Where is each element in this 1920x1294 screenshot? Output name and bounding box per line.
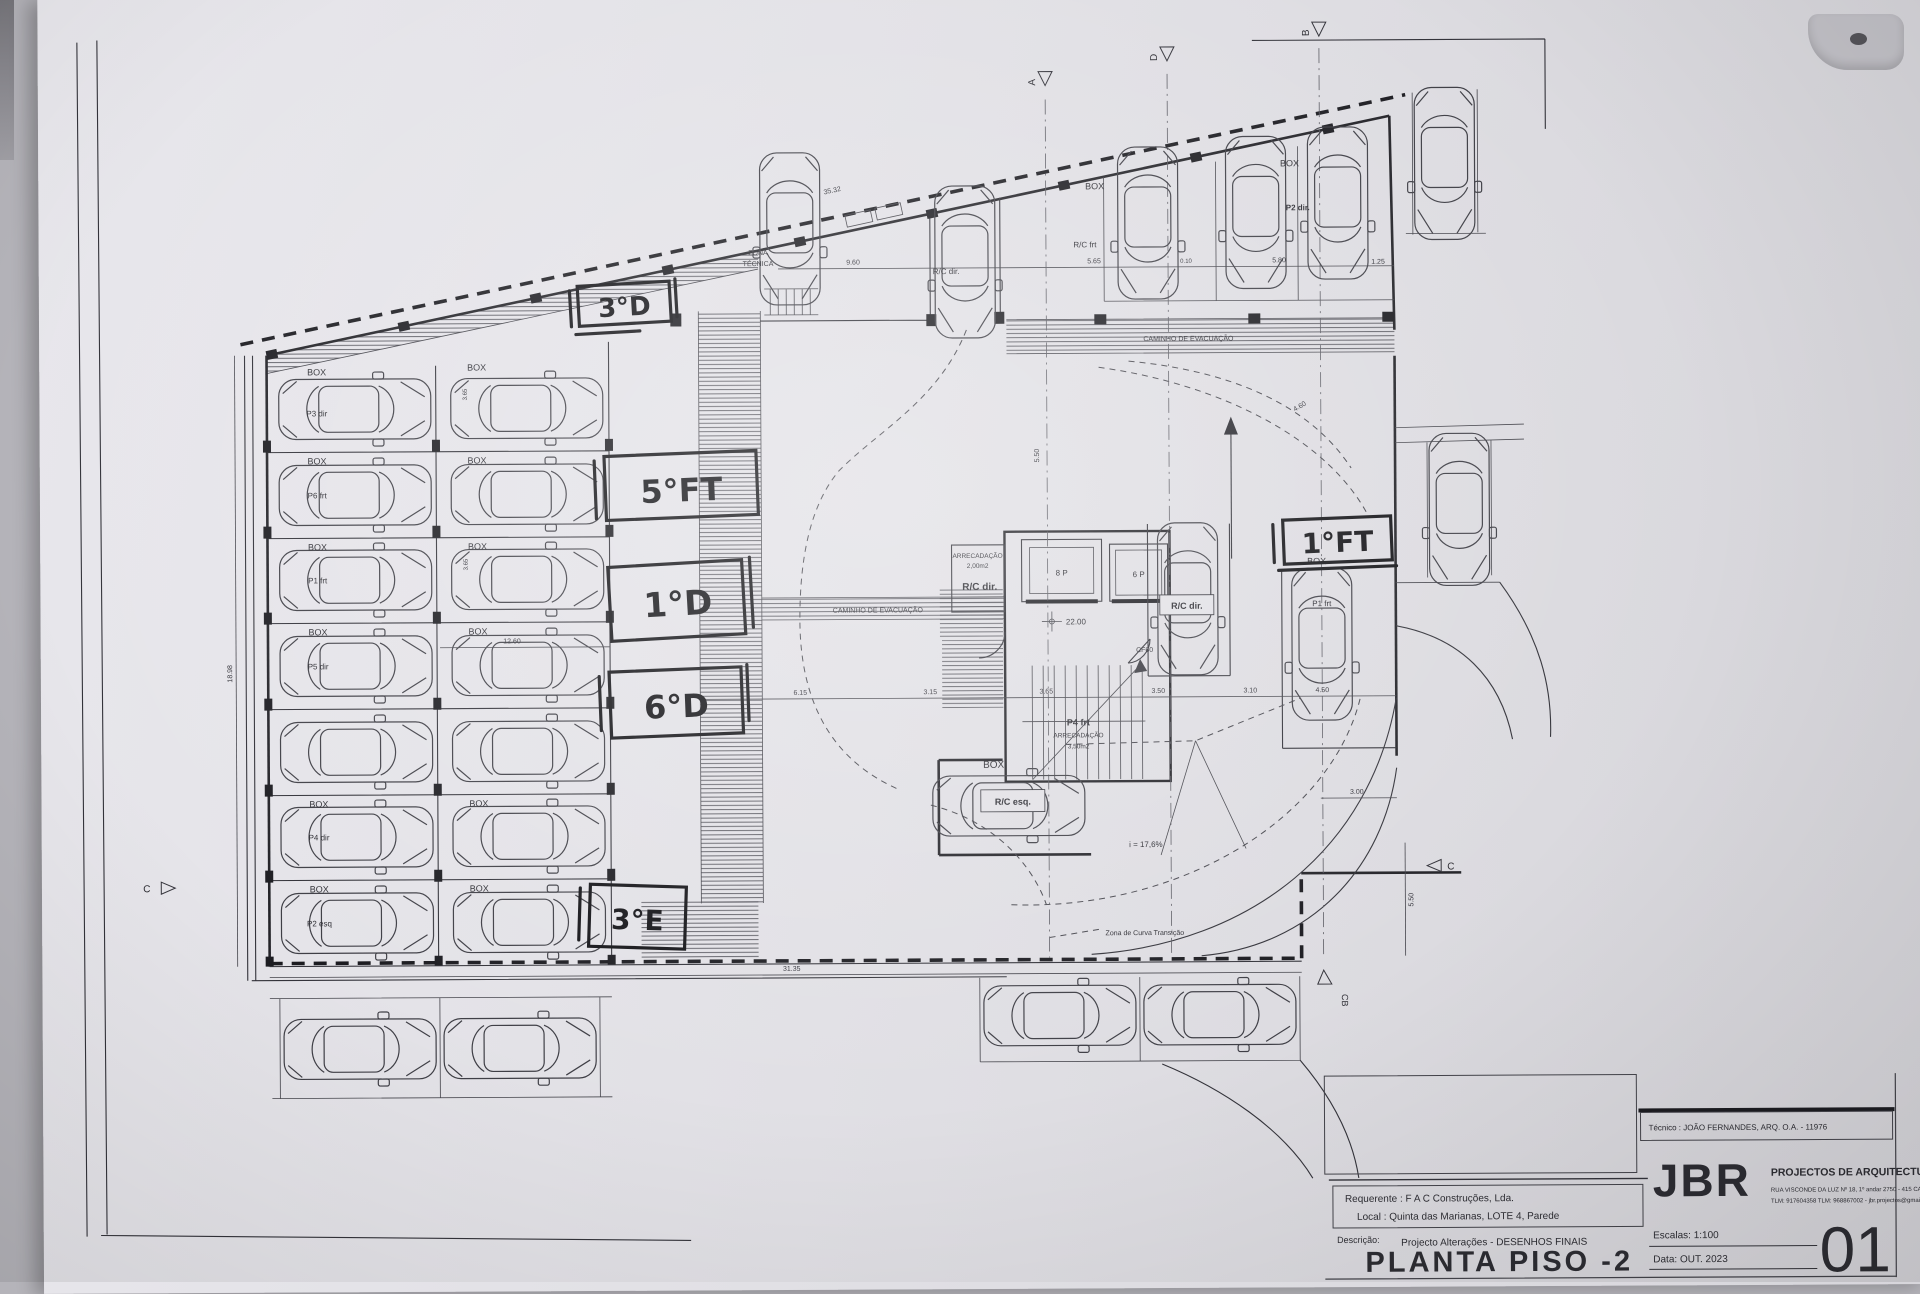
drive-path-curves [798, 328, 1397, 958]
technician-line: Técnico : JOÃO FERNANDES, ARQ. O.A. - 11… [1649, 1122, 1828, 1132]
binder-dot [1850, 33, 1867, 45]
firm-logo: JBR [1653, 1154, 1751, 1207]
car-icon [984, 978, 1136, 1053]
car-icon [1144, 977, 1296, 1052]
unit-label: R/C dir. [962, 582, 997, 593]
dim-text: 4.60 [1292, 400, 1307, 413]
evacuation-path-label: CAMINHO DE EVACUAÇÃO [833, 605, 924, 614]
dim-text: 5.65 [1087, 258, 1101, 265]
box-label: BOX [308, 542, 327, 552]
car-icon [279, 372, 431, 447]
box-label: BOX [310, 884, 329, 894]
car-icon [281, 886, 433, 961]
box-label: BOX [983, 760, 1005, 771]
unit-label: R/C dir. [1171, 601, 1203, 611]
car-icon [453, 885, 605, 960]
level-marker: 22.00 [1066, 617, 1087, 626]
date-line: Data: OUT. 2023 [1653, 1254, 1728, 1265]
stall-code: P2 esq [307, 919, 332, 928]
car-icon [281, 800, 433, 875]
firm-name: PROJECTOS DE ARQUITECTURA [1771, 1166, 1920, 1179]
storage-area: 3,50m2 [1068, 743, 1090, 750]
stall-code: P4 dir [309, 833, 330, 842]
dim-text: 3.65 [463, 388, 469, 400]
evacuation-path-label: CAMINHO DE EVACUAÇÃO [1143, 334, 1234, 343]
scale-line: Escalas: 1:100 [1653, 1230, 1719, 1241]
car-icon [1422, 433, 1497, 585]
box-label: BOX [1085, 181, 1104, 191]
car-icon [451, 542, 603, 617]
box-label: BOX [309, 799, 328, 809]
sheet-frame [77, 33, 1551, 1244]
dim-text: 3.15 [923, 689, 937, 696]
car-icon [451, 371, 603, 446]
car-icon [280, 715, 432, 790]
elevator-label: 6 P [1133, 570, 1145, 579]
car-icon [451, 457, 603, 532]
car-icon [1110, 147, 1185, 299]
dim-text: 3.00 [1350, 789, 1364, 796]
parked-cars [277, 87, 1499, 1086]
photographed-floor-plan: { "photo": { "backdrop": "#b5b4ba", "pap… [0, 0, 1920, 1282]
firm-contacts: TLM: 917604358 TLM: 968867002 - jbr.proj… [1771, 1198, 1920, 1205]
car-icon [452, 628, 604, 703]
dim-text: 3.65 [1039, 689, 1053, 696]
stall-code: P4 frt [1067, 717, 1090, 727]
dim-text: 0.10 [1180, 259, 1192, 265]
dim-text: 3.10 [1243, 687, 1257, 694]
handwritten-unit: 1°D [642, 583, 713, 627]
stall-code: P1 frt [1312, 599, 1332, 608]
site-line: Local : Quinta das Marianas, LOTE 4, Par… [1357, 1211, 1560, 1223]
dim-text: 9.60 [846, 260, 860, 267]
handwritten-unit: 3°E [611, 903, 665, 938]
title-block: Técnico : JOÃO FERNANDES, ARQ. O.A. - 11… [1324, 1073, 1920, 1282]
car-icon [928, 186, 1003, 338]
dim-text: 3.50 [1151, 688, 1165, 695]
stall-code: P5 dir [308, 662, 329, 671]
handwritten-unit: 6°D [643, 686, 709, 727]
box-label: BOX [470, 883, 489, 893]
stall-code: P3 dir [306, 409, 327, 418]
dim-text: 4.50 [1315, 687, 1329, 694]
dim-text: 1.25 [1371, 259, 1385, 266]
dim-text: 35.32 [823, 186, 842, 196]
box-label: BOX [308, 627, 327, 637]
storage-label: ARRECADAÇÃO [1053, 730, 1103, 739]
car-icon [280, 629, 432, 704]
stall-code: R/C frt [1073, 240, 1097, 249]
ramp-slope-label: i = 17,6% [1129, 840, 1163, 849]
section-marker-cb: CB [1340, 994, 1350, 1007]
zona-tecnica-label: TÉCNICA [743, 259, 774, 268]
car-icon [453, 799, 605, 874]
stall-code: R/C dir. [933, 267, 960, 276]
sheet-title: PLANTA PISO -2 [1365, 1245, 1633, 1278]
car-icon [752, 153, 827, 305]
handwritten-unit: 1°FT [1301, 525, 1374, 561]
sheet-number: 01 [1819, 1213, 1891, 1282]
car-icon [284, 1012, 436, 1087]
door-label: CF60 [1136, 647, 1153, 654]
firm-address: RUA VISCONDE DA LUZ Nº 18, 1º andar 2750… [1771, 1186, 1920, 1194]
section-lines: A D B C C CB [139, 21, 1455, 1012]
section-marker-d: D [1149, 54, 1160, 61]
bottom-outside-stalls [270, 976, 1359, 1184]
box-label: BOX [308, 456, 327, 466]
description-label: Descrição: [1337, 1235, 1380, 1245]
elevator-label: 8 P [1056, 568, 1068, 577]
storage-label: ARRECADAÇÃO [952, 551, 1002, 560]
box-label: BOX [468, 541, 487, 551]
curve-zone-label: Zona de Curva Transição [1106, 930, 1185, 937]
storage-area: 2,00m2 [967, 563, 989, 570]
dimension-annotations: 35.32 9.60 5.65 0.10 5.80 1.25 6.15 3.15… [225, 183, 1416, 978]
unit-label: R/C esq. [995, 797, 1031, 807]
zona-tecnica-label: ZONA [748, 250, 768, 257]
handwritten-unit: 3°D [597, 291, 651, 324]
dim-text: 3.65 [464, 558, 470, 570]
dim-text: 5.50 [1034, 449, 1041, 463]
box-label: BOX [307, 367, 326, 377]
box-label: BOX [468, 626, 487, 636]
section-marker-c-left: C [143, 884, 150, 895]
car-icon [1300, 127, 1375, 279]
car-icon [444, 1011, 596, 1086]
dim-text: 5.50 [1408, 893, 1415, 907]
client-line: Requerente : F A C Construções, Lda. [1345, 1193, 1514, 1205]
box-label: BOX [1280, 158, 1299, 168]
stall-code: P2 dir. [1286, 203, 1310, 212]
dim-text: 31.35 [783, 966, 801, 973]
dim-text: 5.80 [1272, 257, 1286, 264]
zona-tecnica-stair [764, 203, 904, 315]
dim-text: 12.60 [503, 638, 521, 645]
section-marker-a: A [1027, 79, 1038, 86]
handwritten-unit: 5°FT [640, 470, 724, 511]
dim-text: 18.98 [227, 665, 234, 683]
box-label: BOX [468, 455, 487, 465]
section-marker-c-right: C [1447, 861, 1454, 872]
car-icon [1407, 87, 1482, 239]
stall-code: P6 frt [308, 491, 328, 500]
section-marker-b: B [1301, 29, 1312, 36]
dim-text: 6.15 [793, 690, 807, 697]
floor-plan-drawing: A D B C C CB [0, 0, 1920, 1282]
car-icon [452, 714, 604, 789]
box-label: BOX [469, 798, 488, 808]
printed-labels: ZONA TÉCNICA CAMINHO DE EVACUAÇÃO CAMINH… [303, 158, 1334, 941]
box-label: BOX [467, 362, 486, 372]
car-icon [279, 543, 431, 618]
car-icon [279, 458, 431, 533]
stall-code: P1 frt [308, 576, 328, 585]
